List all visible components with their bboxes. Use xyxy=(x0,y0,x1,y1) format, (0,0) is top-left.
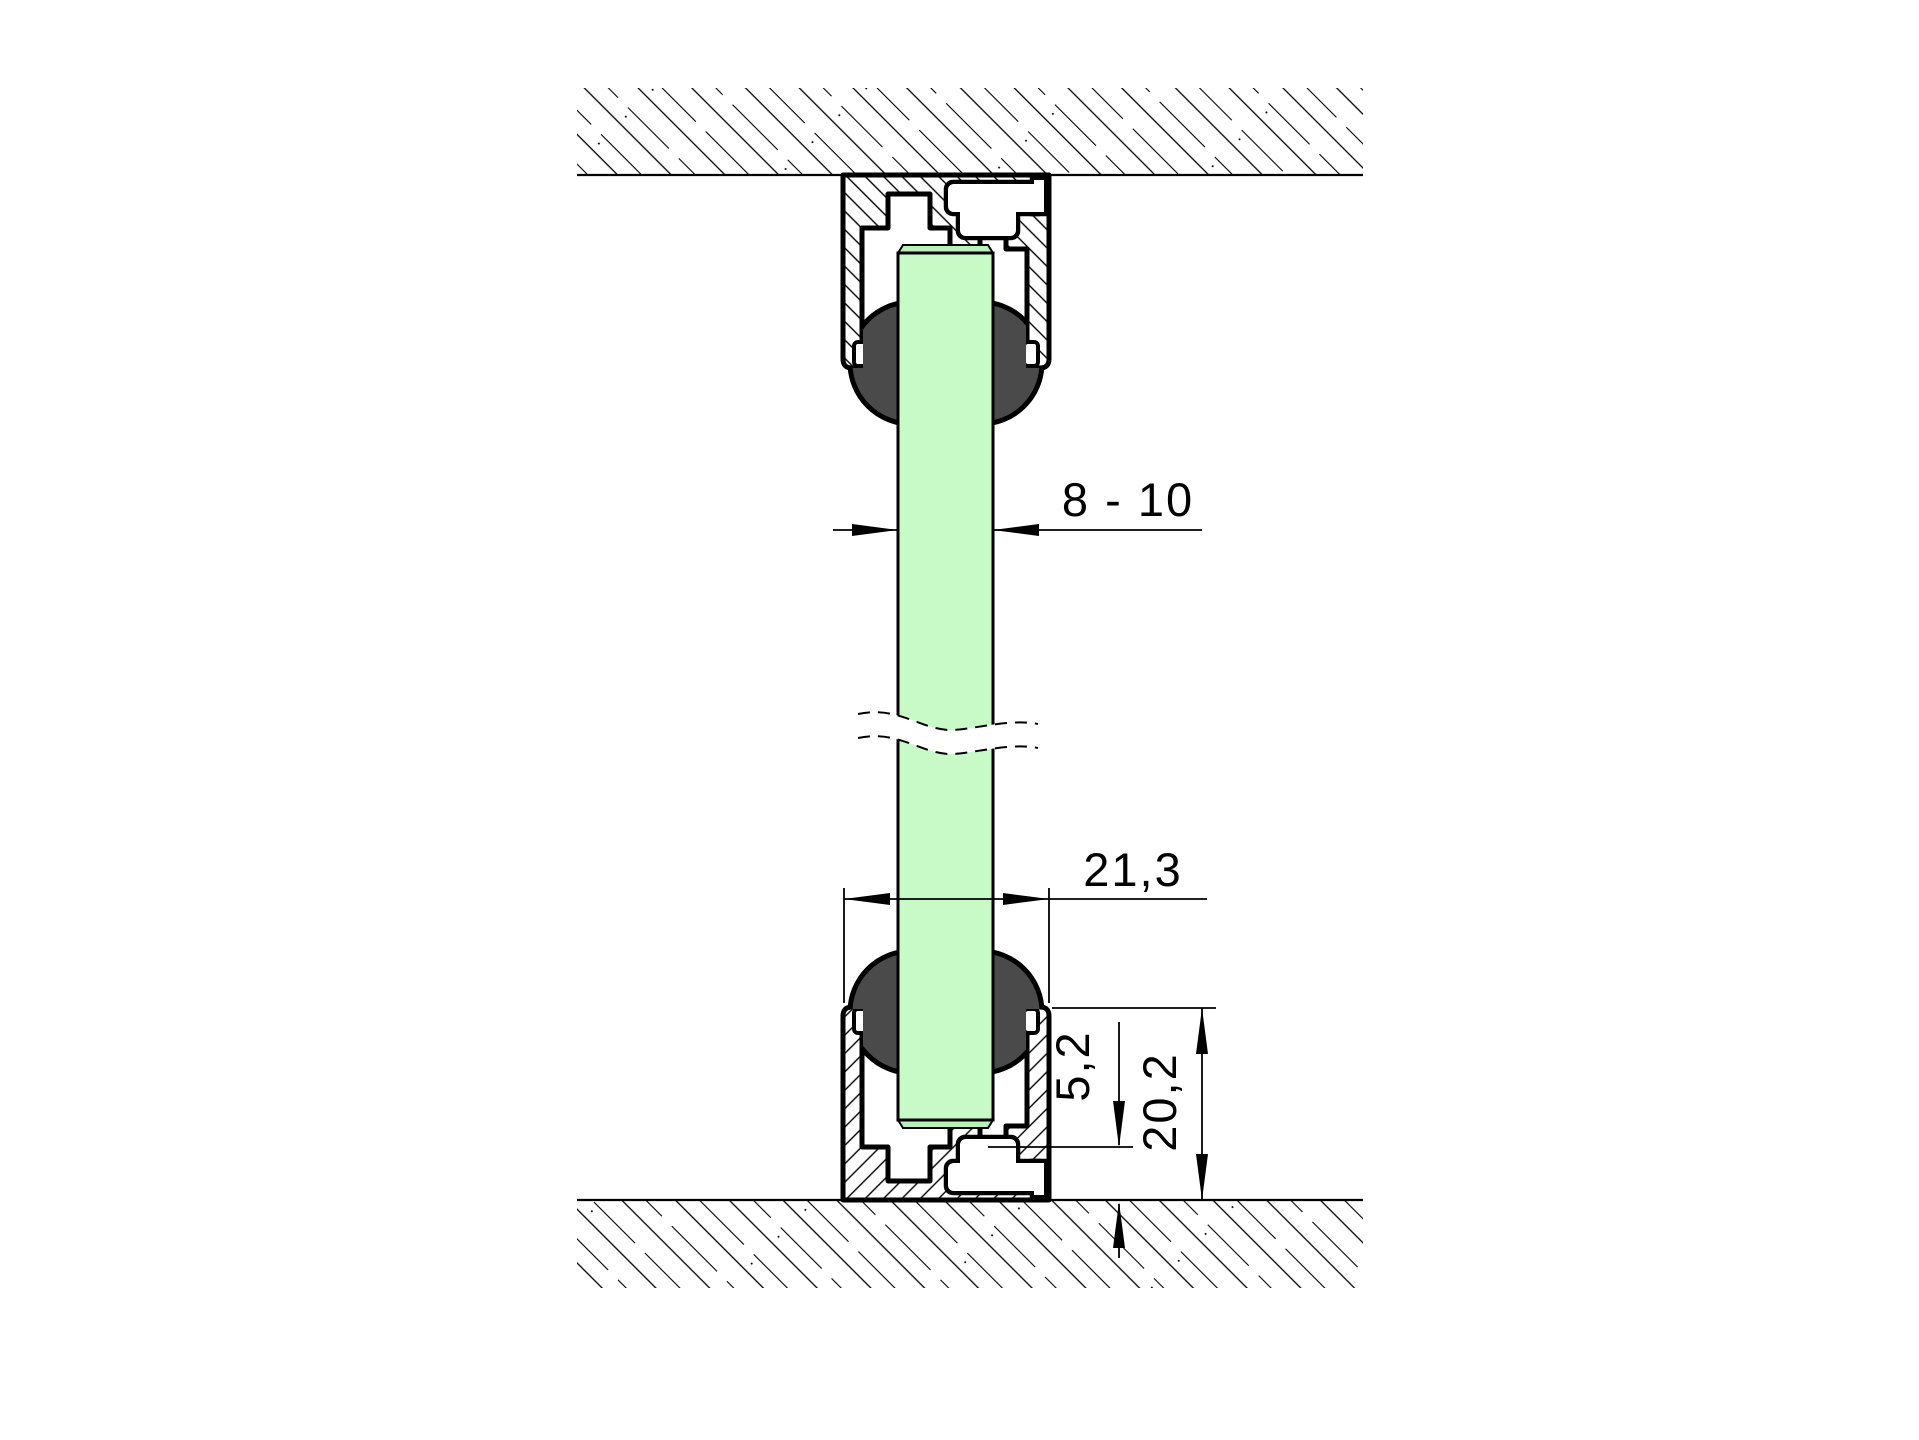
arrowhead xyxy=(1113,1101,1125,1147)
dimension-label-base-thickness: 5,2 xyxy=(1046,1030,1099,1101)
dimension-glass-thickness: 8 - 10 xyxy=(833,473,1202,536)
arrowhead xyxy=(1196,1008,1208,1054)
clip-hook-face xyxy=(960,207,1016,236)
arrowhead xyxy=(844,893,890,905)
dimension-label-channel-height: 20,2 xyxy=(1133,1052,1186,1151)
ceiling-hatch xyxy=(577,88,1363,175)
dimension-label-channel-width: 21,3 xyxy=(1083,843,1182,896)
arrowhead xyxy=(993,524,1039,536)
arrowhead xyxy=(1003,893,1049,905)
technical-drawing: 8 - 10 21,3 5,2 20,2 xyxy=(0,0,1919,1440)
arrowhead xyxy=(852,524,898,536)
clip-notch-face xyxy=(1034,180,1044,212)
dimension-label-glass-thickness: 8 - 10 xyxy=(1062,473,1194,526)
glass-body xyxy=(898,253,993,1120)
wall-foot-notch-right xyxy=(1024,342,1038,366)
floor-hatch xyxy=(577,1201,1363,1288)
arrowhead xyxy=(1196,1154,1208,1200)
glass-panel xyxy=(898,245,993,1128)
floor-section xyxy=(577,1200,1363,1288)
ceiling-section xyxy=(577,88,1363,175)
technical-drawing-canvas: 8 - 10 21,3 5,2 20,2 xyxy=(0,0,1919,1440)
